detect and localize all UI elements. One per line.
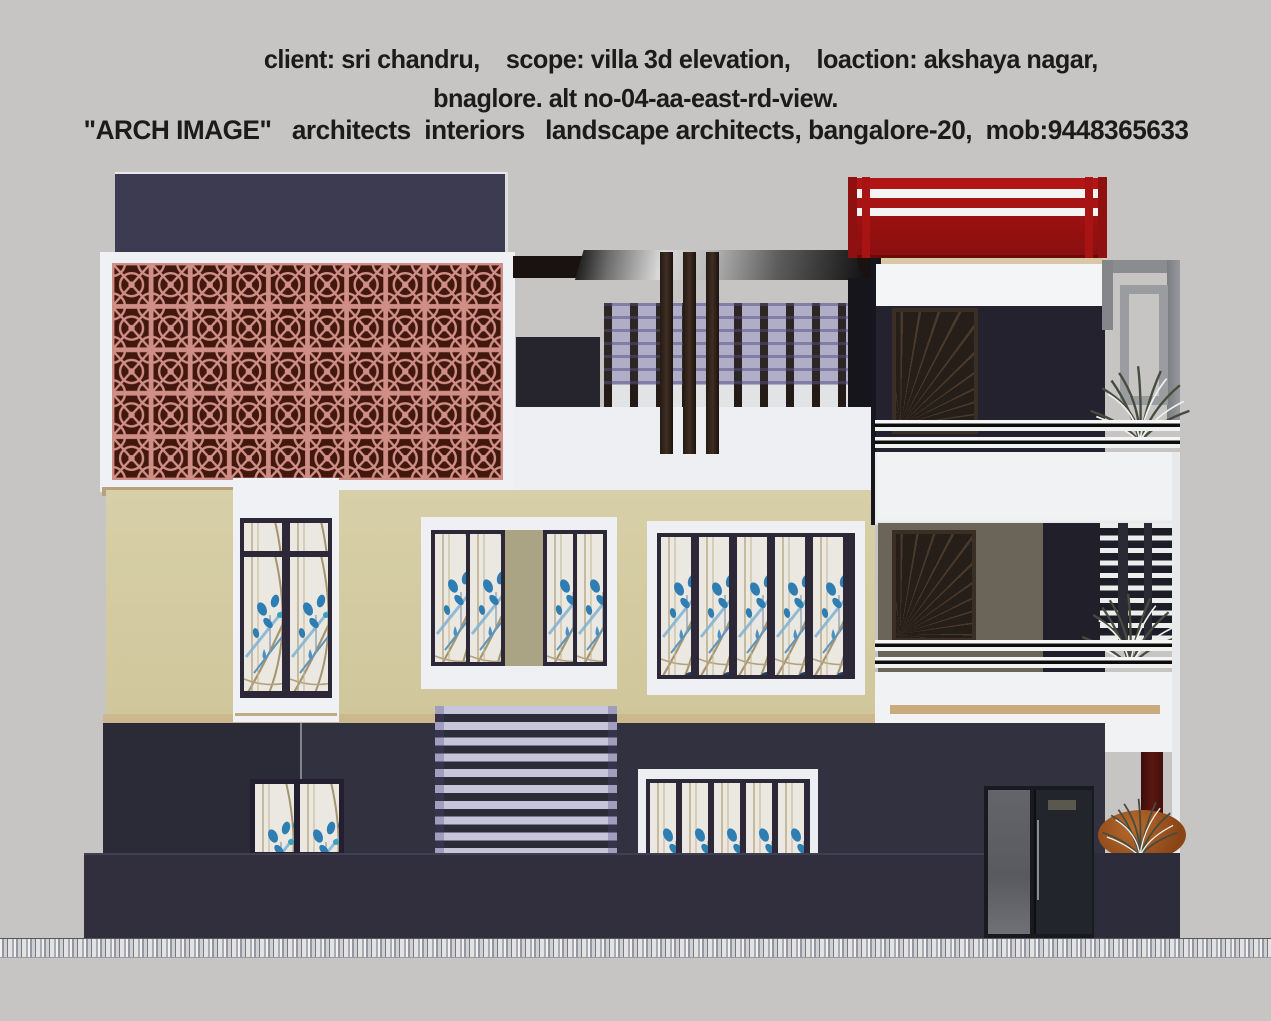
window-group-left-frame-a [431,530,505,666]
window-group-left-center-panel [505,530,543,666]
red-rail-solid [857,216,1098,258]
header-line-firm-contact: "ARCH IMAGE" architects interiors landsc… [20,115,1271,146]
red-railing-rails [857,177,1098,258]
balcony-plant-upper [1080,352,1200,447]
villa-elevation-render: client: sri chandru, scope: villa 3d ele… [0,0,1271,1021]
red-railing [848,177,1107,258]
tower-fascia-white [876,264,1105,308]
balcony-door-1f [892,530,976,642]
railing-1f-slat-1 [875,640,1180,651]
compound-wall-right [1094,853,1180,940]
pane [661,537,691,675]
red-post-left-outer [848,177,857,258]
pane [547,534,573,662]
terrace-back-wall [516,337,600,408]
window-tall-pane-right [290,557,328,691]
railing-2f-slat-2 [875,437,1180,448]
railing-2f-slat-1 [875,420,1180,431]
window-tall-pane-top-right [290,523,328,551]
pane [435,534,466,662]
parapet-navy-block [115,172,508,260]
terrace-door [892,308,978,434]
pane [775,537,805,675]
window-tall-pane-top-left [244,523,282,551]
gate-handle [1037,820,1039,900]
gate-glass-panel [988,790,1030,934]
jali-screen-pattern [112,263,503,480]
compound-wall-front [84,853,1094,942]
red-post-right-inner [1085,177,1093,258]
parapet-2f-white [875,452,1180,525]
pane [470,534,501,662]
pane [699,537,729,675]
pane [577,534,603,662]
red-rail-gap-2 [857,208,1098,216]
pane [255,784,294,852]
pergola-post-3 [706,252,719,454]
red-rail-mid [857,198,1098,208]
pergola-post-2 [683,252,696,454]
pergola-post-1 [660,252,673,454]
window-tall-frame [240,518,332,698]
red-post-left-inner [862,177,870,258]
terrace-railing-legs [604,385,850,408]
gate-plant [1090,788,1190,860]
ground-paving-strip [0,938,1271,958]
pane [300,784,339,852]
window-small-ground [250,779,344,857]
header-line-client-scope-location: client: sri chandru, scope: villa 3d ele… [20,44,1271,75]
pane [813,537,843,675]
window-tall-pane-left [244,557,282,691]
pane [737,537,767,675]
gate-name-plate [1048,800,1076,810]
header-line-city-view: bnaglore. alt no-04-aa-east-rd-view. [19,83,1252,114]
main-gate [984,786,1094,938]
parapet-wood-inlay [890,705,1160,714]
terrace-glass-railing [604,303,850,387]
red-post-right-outer [1098,177,1107,258]
window-tall-surround [233,478,339,722]
railing-1f-slat-2 [875,657,1180,668]
window-group-left [421,517,617,689]
window-group-right [647,521,865,695]
red-rail-top [857,178,1098,189]
window-tall-sill-line [235,713,337,716]
elliptical-canopy [575,250,863,280]
window-group-right-frame [657,533,855,679]
red-rail-gap-1 [857,189,1098,198]
window-group-left-frame-b [543,530,607,666]
side-pergola-left-bar [1102,260,1113,330]
gate-solid-panel [1034,790,1092,934]
